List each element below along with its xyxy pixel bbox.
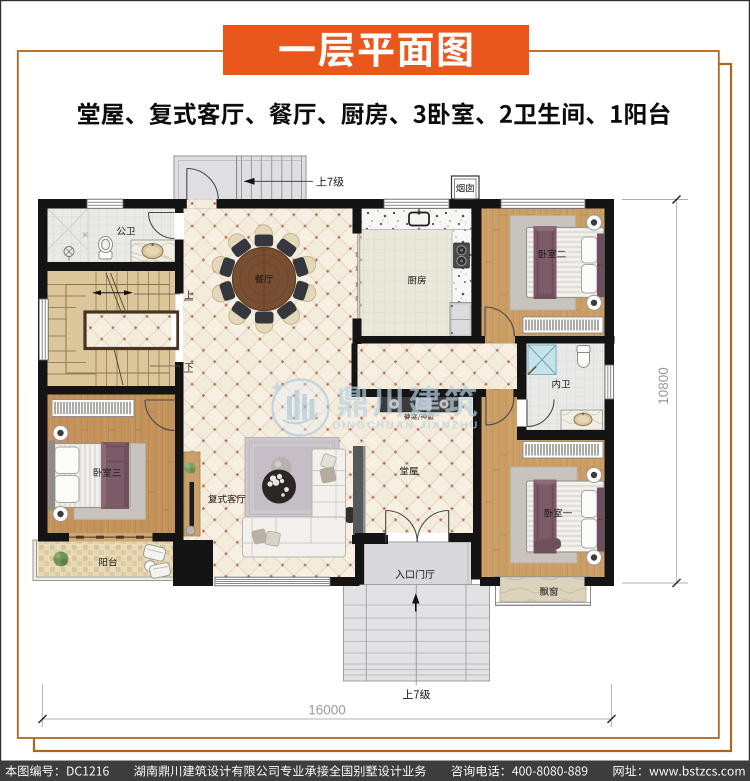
svg-text:DINGCHUAN JIANZHU: DINGCHUAN JIANZHU [333,420,480,432]
svg-text:10800: 10800 [656,367,671,405]
svg-text:16000: 16000 [308,703,346,718]
